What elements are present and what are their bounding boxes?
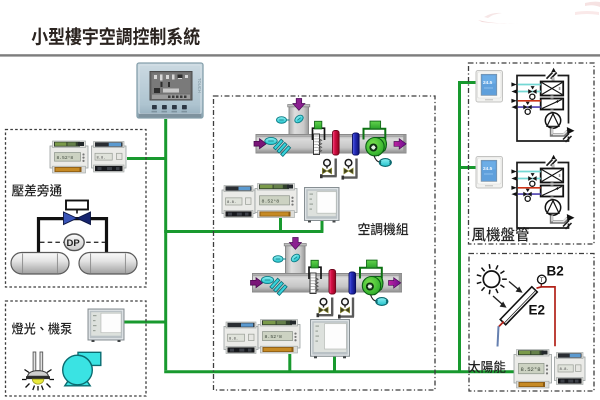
svg-text:24.5: 24.5	[483, 80, 493, 86]
svg-text:8.52°8: 8.52°8	[265, 334, 283, 340]
svg-text:E2: E2	[529, 303, 546, 318]
svg-text:8.52°8: 8.52°8	[262, 198, 280, 204]
svg-text:8.8.: 8.8.	[227, 201, 236, 205]
svg-text:TOUCH: TOUCH	[197, 78, 202, 93]
svg-text:T: T	[540, 278, 544, 284]
svg-text:8.52°8: 8.52°8	[57, 155, 74, 161]
svg-text:8.8.: 8.8.	[229, 337, 238, 341]
svg-text:8.8.: 8.8.	[97, 156, 106, 160]
svg-text:DP: DP	[67, 238, 81, 249]
svg-text:24.5: 24.5	[483, 166, 493, 172]
svg-text:B2: B2	[547, 264, 564, 279]
svg-text:8.52°8: 8.52°8	[521, 366, 541, 373]
svg-text:8.8.: 8.8.	[560, 368, 569, 372]
